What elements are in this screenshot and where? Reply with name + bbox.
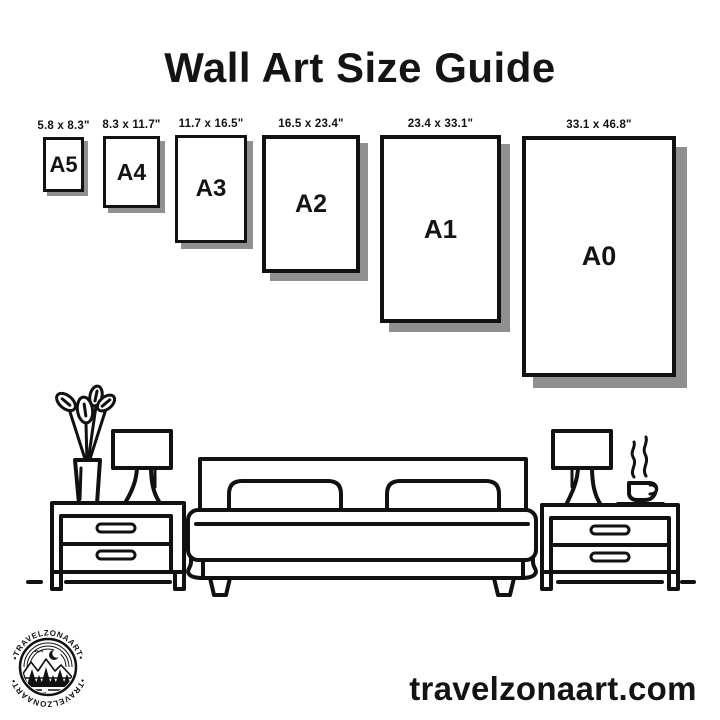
coffee-cup [618, 437, 663, 504]
brand-logo-badge: •TRAVELZONAART• •TRAVELZONAART• [2, 621, 94, 713]
mattress [188, 510, 536, 560]
nightstand-right [542, 505, 678, 589]
table-lamp-right [553, 431, 611, 505]
bedroom-illustration [0, 0, 720, 720]
table-lamp-left [113, 431, 171, 503]
double-bed [188, 459, 536, 595]
plant-vase [53, 385, 117, 504]
wall-art-size-guide: Wall Art Size Guide 5.8 x 8.3" A5 8.3 x … [0, 0, 720, 720]
bed-leg-left [210, 578, 230, 595]
nightstand-left [52, 503, 184, 589]
bed-leg-right [494, 578, 514, 595]
website-url: travelzonaart.com [400, 670, 706, 708]
bed-base [203, 560, 523, 578]
